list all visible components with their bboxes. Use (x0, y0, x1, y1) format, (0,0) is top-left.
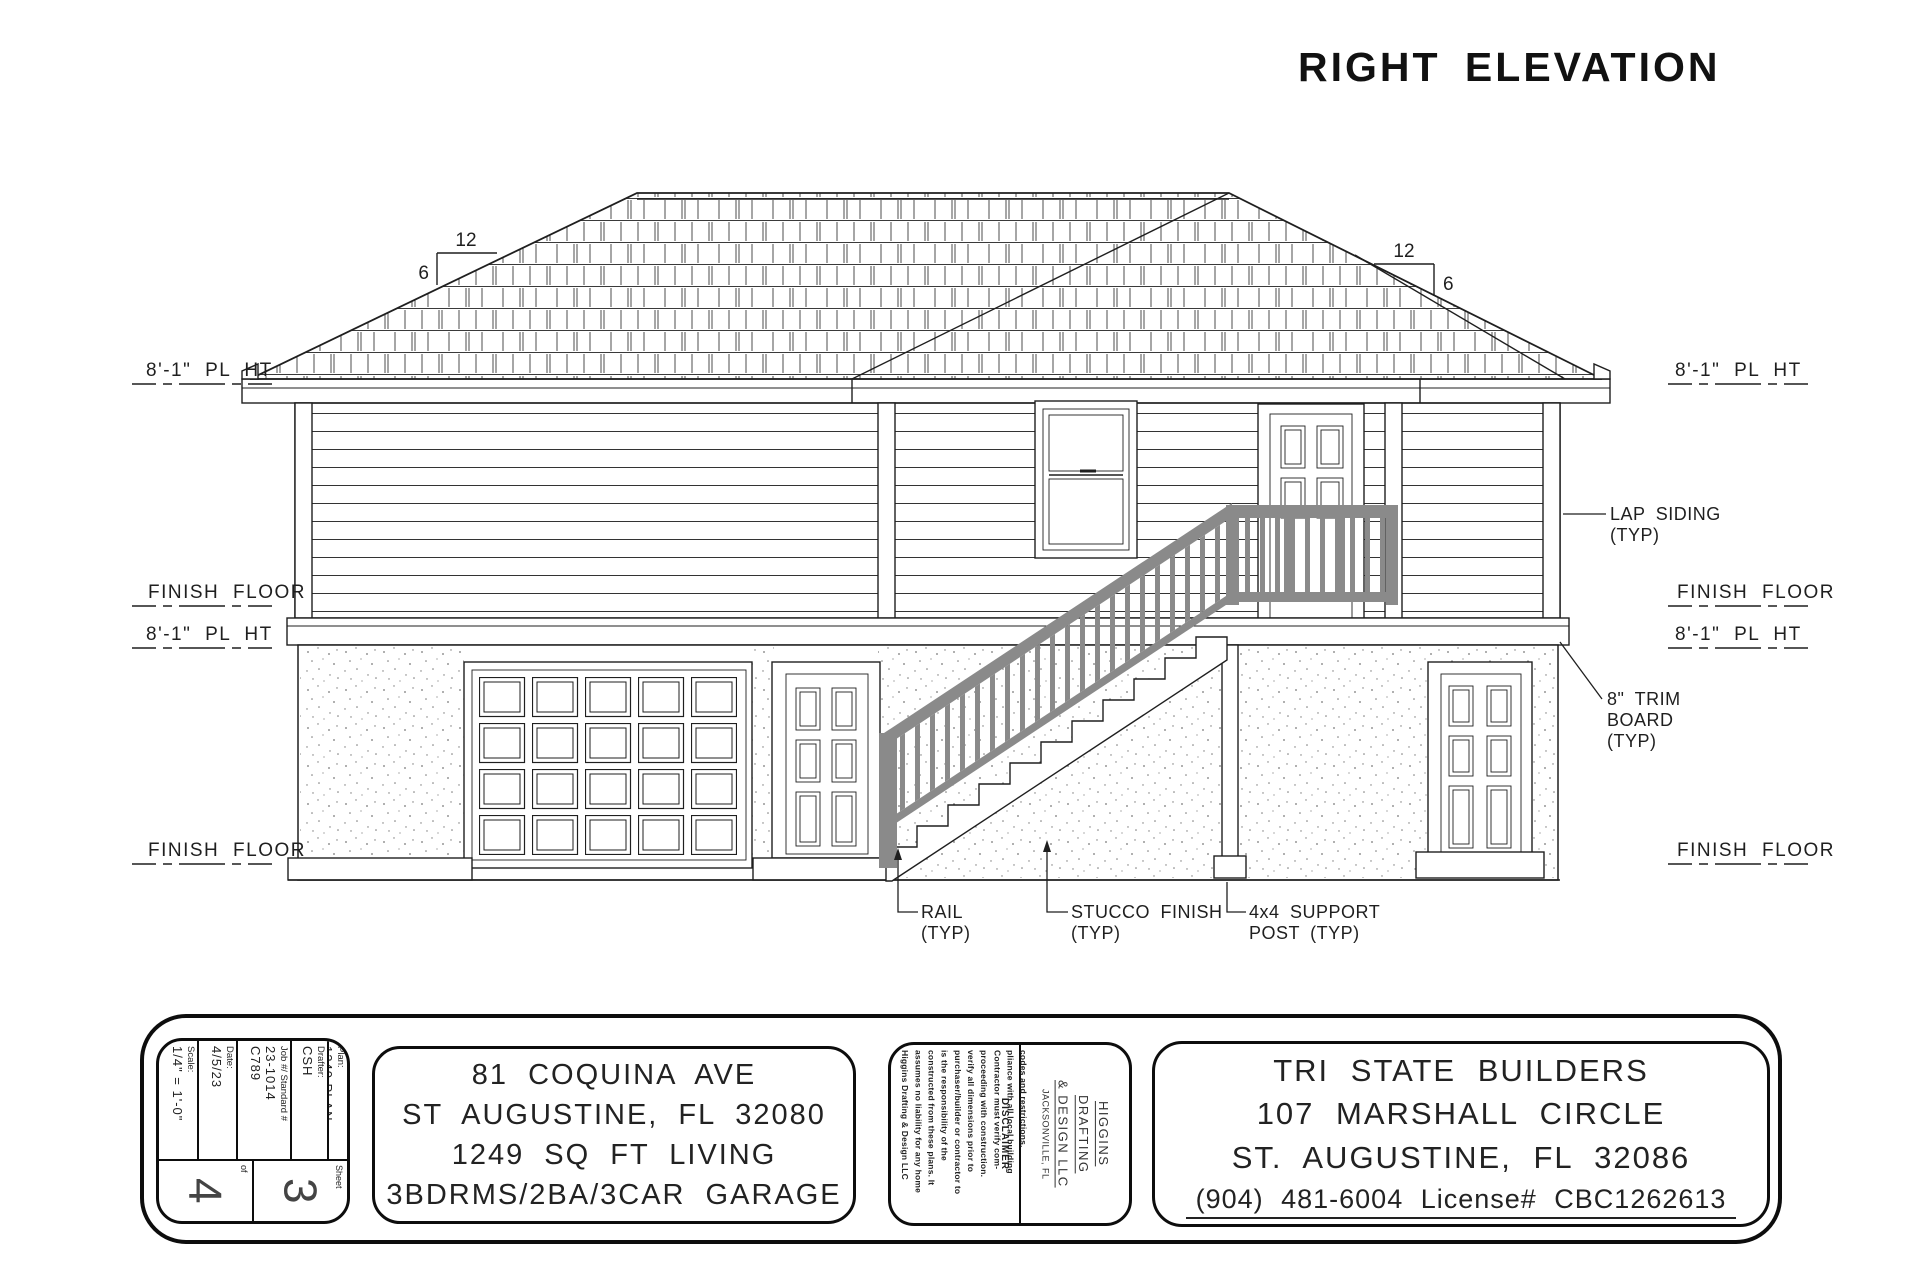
date-label: Date: (224, 1046, 235, 1155)
title-block: Scale: 1/4" = 1'-0" Date: 4/5/23 Job #/ … (140, 1014, 1782, 1244)
stucco-mid (752, 646, 774, 878)
project-spec-line: 1249 SQ FT LIVING (452, 1135, 777, 1175)
footer-left (288, 858, 472, 880)
callout-text: 4x4 SUPPORT (1249, 902, 1380, 922)
firm-name-line: DRAFTING (1073, 1080, 1093, 1188)
pitch-rise: 6 (418, 263, 429, 284)
disclaimer-cell: DISCLAIMER Higgins Drafting & Design LLC… (891, 1045, 1021, 1223)
job-number: 23-1014 (263, 1046, 278, 1157)
dimension-labels-left: 8'-1" PL HT FINISH FLOOR 8'-1" PL HT FIN… (132, 360, 306, 864)
dimension-labels-right: 8'-1" PL HT FINISH FLOOR 8'-1" PL HT FIN… (1668, 360, 1835, 864)
corner-trim-right (1543, 403, 1560, 618)
floor-rim-band (287, 618, 1569, 645)
date-field: Date: 4/5/23 (199, 1041, 238, 1159)
builder-name: TRI STATE BUILDERS (1273, 1049, 1649, 1092)
plate-height-label: 8'-1" PL HT (146, 624, 273, 645)
plan-field: Plan: 1249 PLAN (329, 1041, 347, 1159)
eave-return-right (1594, 364, 1610, 379)
pitch-rise: 6 (1443, 274, 1454, 295)
plan-value: 1249 PLAN (329, 1046, 335, 1157)
hip-roof (242, 193, 1610, 403)
wall-trim-middle (878, 403, 895, 618)
project-address-box: 81 COQUINA AVE ST AUGUSTINE, FL 32080 12… (372, 1046, 856, 1224)
callout-trim-board: 8" TRIM BOARD (TYP) (1560, 642, 1681, 751)
plate-height-label: 8'-1" PL HT (1675, 360, 1802, 381)
callout-text: BOARD (1607, 710, 1674, 730)
door-sill (1416, 852, 1544, 878)
info-columns: Scale: 1/4" = 1'-0" Date: 4/5/23 Job #/ … (159, 1041, 347, 1159)
callout-text: LAP SIDING (1610, 504, 1721, 524)
finish-floor-label: FINISH FLOOR (1677, 582, 1835, 603)
plate-height-label: 8'-1" PL HT (1675, 624, 1802, 645)
stair-rail-post (879, 733, 897, 868)
sheet-row: of 4 Sheet 3 (159, 1159, 347, 1221)
builder-address-line: 107 MARSHALL CIRCLE (1257, 1092, 1666, 1135)
callout-support-post: 4x4 SUPPORT POST (TYP) (1227, 882, 1380, 943)
drafter-label: Drafter: (315, 1046, 326, 1155)
lower-right-door (1416, 662, 1544, 878)
garage-door-panels (479, 677, 737, 855)
date-value: 4/5/23 (209, 1046, 224, 1157)
pitch-run: 12 (455, 230, 476, 251)
drafter-field: Drafter: CSH (292, 1041, 329, 1159)
sheet-number-cell: Sheet 3 (254, 1161, 347, 1221)
job-label: Job #/ Standard # (278, 1046, 289, 1155)
firm-city: JACKSONVILLE, FL (1037, 1080, 1052, 1188)
plan-label: Plan: (335, 1046, 346, 1155)
sheet-total: 4 (183, 1178, 229, 1204)
callout-text: (TYP) (921, 923, 971, 943)
finish-floor-label: FINISH FLOOR (148, 582, 306, 603)
plate-height-label: 8'-1" PL HT (146, 360, 273, 381)
fascia-band (242, 379, 1610, 403)
elevation-sheet: RIGHT ELEVATION (0, 0, 1920, 1280)
info-box: Scale: 1/4" = 1'-0" Date: 4/5/23 Job #/ … (156, 1038, 350, 1224)
door-sill (753, 858, 889, 880)
builder-address-line: ST. AUGUSTINE, FL 32086 (1232, 1136, 1691, 1179)
builder-contact: (904) 481-6004 License# CBC1262613 (1186, 1184, 1737, 1219)
project-address-line: ST AUGUSTINE, FL 32080 (402, 1095, 826, 1135)
lower-left-door (753, 662, 889, 880)
finish-floor-label: FINISH FLOOR (148, 840, 306, 861)
landing-rail (1226, 505, 1398, 605)
job-standard: C789 (248, 1046, 263, 1157)
callout-text: STUCCO FINISH (1071, 902, 1223, 922)
finish-floor-label: FINISH FLOOR (1677, 840, 1835, 861)
callout-text: (TYP) (1610, 525, 1660, 545)
callout-text: (TYP) (1071, 923, 1121, 943)
callout-lap-siding: LAP SIDING (TYP) (1563, 504, 1721, 545)
project-address-line: 81 COQUINA AVE (472, 1055, 756, 1095)
drafter-value: CSH (300, 1046, 315, 1157)
disclaimer-box: DISCLAIMER Higgins Drafting & Design LLC… (888, 1042, 1132, 1226)
double-hung-window (1035, 401, 1137, 558)
stucco-left (300, 646, 464, 878)
scale-field: Scale: 1/4" = 1'-0" (159, 1041, 199, 1159)
disclaimer-text: Higgins Drafting & Design LLC assumes no… (898, 1050, 1030, 1218)
callout-text: POST (TYP) (1249, 923, 1360, 943)
sheet-number: 3 (278, 1178, 324, 1204)
sheet-total-cell: of 4 (159, 1161, 254, 1221)
firm-name-line: HIGGINS (1093, 1080, 1113, 1188)
scale-label: Scale: (185, 1046, 196, 1155)
callout-text: (TYP) (1607, 731, 1657, 751)
callout-text: 8" TRIM (1607, 689, 1681, 709)
garage-door (464, 662, 752, 868)
builder-box: TRI STATE BUILDERS 107 MARSHALL CIRCLE S… (1152, 1041, 1770, 1227)
pitch-run: 12 (1393, 241, 1414, 262)
of-label: of (239, 1165, 249, 1173)
scale-value: 1/4" = 1'-0" (170, 1046, 185, 1157)
landing-balusters (1226, 518, 1398, 592)
job-field: Job #/ Standard # 23-1014 C789 (238, 1041, 292, 1159)
page-title: RIGHT ELEVATION (1298, 44, 1720, 91)
callout-text: RAIL (921, 902, 963, 922)
project-spec-line: 3BDRMS/2BA/3CAR GARAGE (386, 1175, 841, 1215)
firm-name-line: & DESIGN LLC (1052, 1080, 1072, 1188)
sheet-label: Sheet (334, 1165, 344, 1189)
drafting-firm-cell: HIGGINS DRAFTING & DESIGN LLC JACKSONVIL… (1021, 1045, 1129, 1223)
roof-shingles (250, 193, 1602, 379)
